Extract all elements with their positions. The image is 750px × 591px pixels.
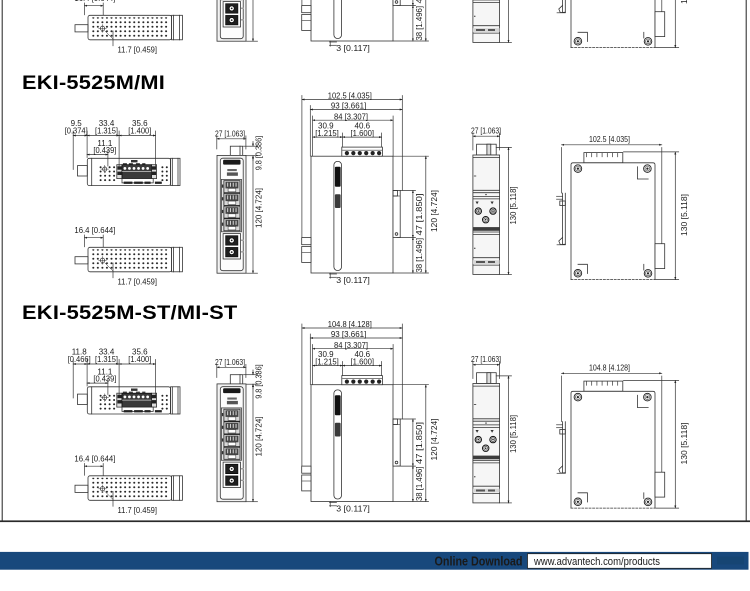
svg-text:www.advantech.com/products: www.advantech.com/products	[533, 556, 660, 568]
svg-text:EKI-5525M-ST/MI-ST: EKI-5525M-ST/MI-ST	[22, 303, 238, 324]
svg-text:EKI-5525M/MI: EKI-5525M/MI	[22, 73, 165, 94]
svg-text:Online Download: Online Download	[435, 554, 523, 569]
